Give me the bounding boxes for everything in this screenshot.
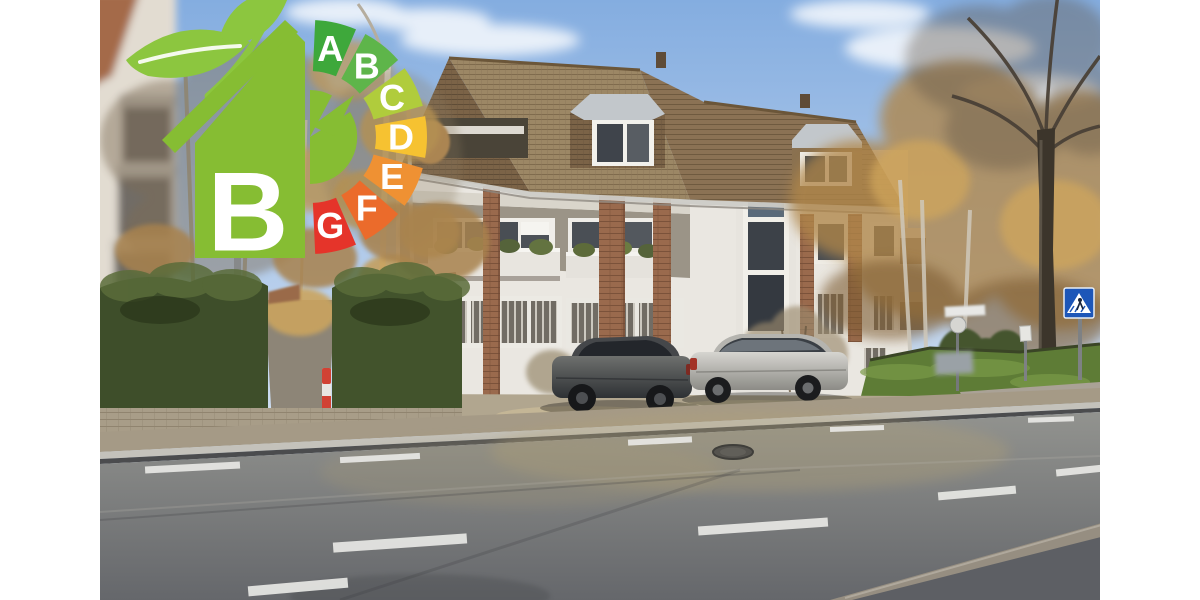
energy-rating-letter: B — [208, 150, 289, 275]
manhole — [713, 445, 753, 459]
small-sign-back — [1020, 326, 1032, 342]
scene-photo: B ABCDEFG — [100, 0, 1100, 600]
energy-class-letter-A: A — [317, 28, 343, 69]
street-name-sign — [945, 305, 985, 317]
round-sign-back — [950, 317, 966, 333]
property-photo: B ABCDEFG — [100, 0, 1100, 600]
blurred-sign-box — [934, 351, 973, 375]
energy-class-letter-G: G — [316, 205, 344, 246]
energy-class-letter-B: B — [354, 45, 380, 86]
energy-class-letter-D: D — [388, 117, 414, 158]
energy-class-letter-C: C — [379, 77, 405, 118]
screenshot-canvas: B ABCDEFG — [0, 0, 1200, 600]
energy-class-letter-E: E — [380, 156, 404, 197]
energy-class-letter-F: F — [356, 188, 378, 229]
dormer-1 — [570, 94, 665, 168]
taillight — [690, 358, 697, 370]
